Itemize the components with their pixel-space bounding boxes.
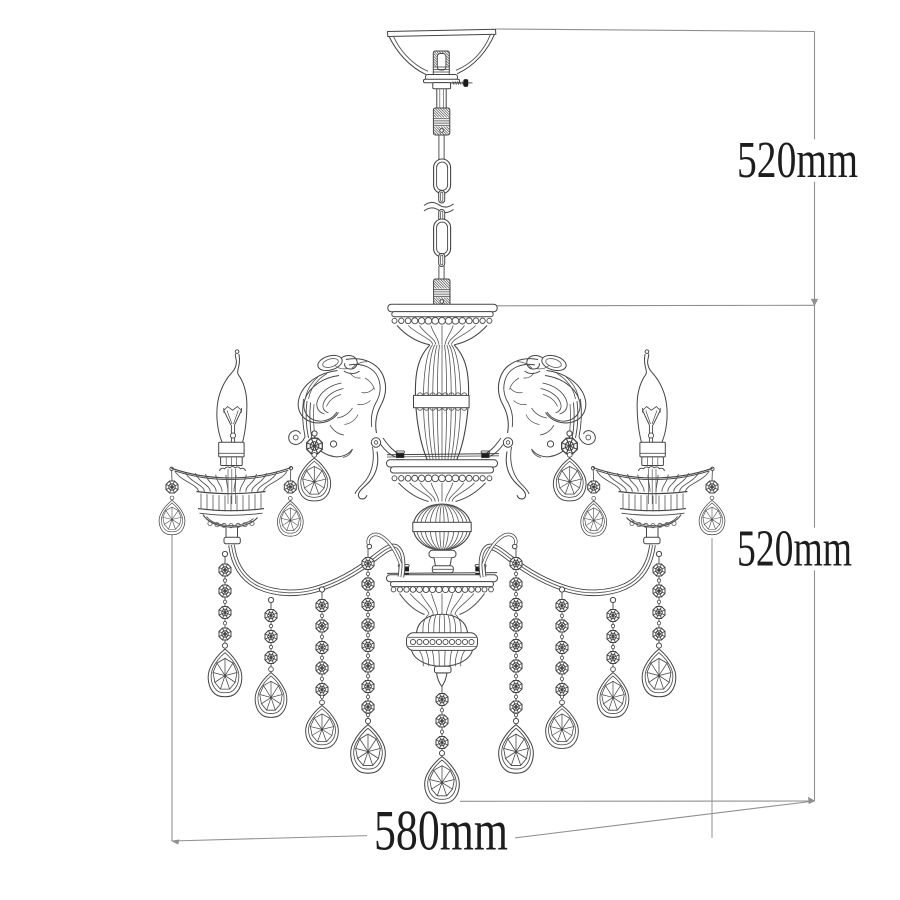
svg-text:520mm: 520mm: [737, 521, 852, 578]
svg-text:520mm: 520mm: [737, 132, 858, 189]
svg-text:580mm: 580mm: [374, 800, 508, 863]
